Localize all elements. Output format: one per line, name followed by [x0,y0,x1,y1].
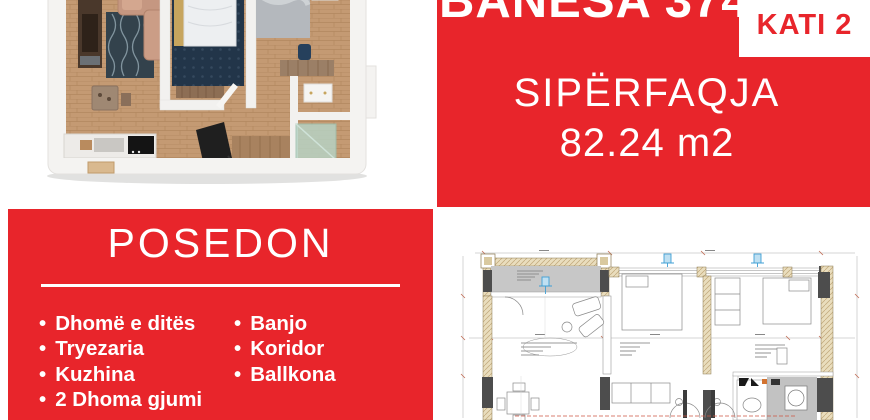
bedroom-wall-bottom [160,100,224,110]
divider-line [41,284,400,287]
column [818,272,830,298]
door-leaf [711,390,715,418]
toilet [298,44,311,60]
feature-list-column2: •Banjo •Koridor •Ballkona [234,311,336,387]
living-furniture [497,296,605,420]
feature-label: Tryezaria [55,337,144,360]
tv-cabinet-inner [82,14,98,52]
tv-cabinet-shelf [80,56,100,65]
feature-item: •Koridor [234,336,336,361]
bullet-icon: • [234,337,241,360]
kitchen-counter [64,134,156,158]
feature-label: Banjo [250,312,307,335]
bedroom1-furniture [612,274,682,403]
floor-badge: KATI 2 [739,0,870,57]
bed-bench [176,86,224,98]
bedroom2-furniture [715,278,811,364]
bullet-icon: • [39,388,46,411]
floorplan-3d-render [0,0,435,196]
features-title: POSEDON [8,220,433,267]
feature-item: •2 Dhoma gjumi [39,387,202,412]
room-label-text [521,343,577,355]
hall-bench [232,136,290,158]
entry-door [88,162,114,173]
bathroom [737,377,817,420]
feature-item: •Tryezaria [39,336,202,361]
feature-label: Koridor [250,337,324,360]
interior-wall [603,296,611,374]
bed [174,0,236,46]
features-panel: POSEDON •Dhomë e ditës •Tryezaria •Kuzhi… [8,209,433,420]
feature-label: 2 Dhoma gjumi [55,388,202,411]
area-label: SIPËRFAQJA [437,71,857,116]
feature-item: •Banjo [234,311,336,336]
floorplan-2d-image [455,250,870,420]
room-label-text [620,343,650,355]
door-leaf [683,390,687,418]
floorplan-3d-image [0,0,435,196]
stool [121,93,131,106]
feature-item: •Dhomë e ditës [39,311,202,336]
feature-label: Dhomë e ditës [55,312,195,335]
bullet-icon: • [234,312,241,335]
bullet-icon: • [39,363,46,386]
bathroom-floor [256,0,310,38]
bedroom-wall-left [160,0,170,108]
unit-banner: BANESA 374 KATI 2 SIPËRFAQJA 82.24 m2 [437,0,870,207]
feature-list-column1: •Dhomë e ditës •Tryezaria •Kuzhina •2 Dh… [39,311,202,413]
column [817,378,833,412]
bullet-icon: • [39,312,46,335]
column [703,390,711,420]
bath-wall-top [733,372,833,376]
coffee-table [92,86,118,110]
feature-item: •Ballkona [234,362,336,387]
feature-label: Kuzhina [55,363,135,386]
column [482,377,493,408]
interior-wall [703,276,711,374]
hall-wall-2 [290,112,350,120]
feature-label: Ballkona [250,363,335,386]
feature-item: •Kuzhina [39,362,202,387]
bedroom-wall-right [246,0,256,108]
bullet-icon: • [39,337,46,360]
area-value: 82.24 m2 [437,121,857,166]
hall-cabinet [304,84,332,102]
column [600,377,610,410]
floorplan-2d-drawing [455,250,870,420]
bullet-icon: • [234,363,241,386]
unit-title: BANESA 374 [439,0,741,29]
balcony [481,254,611,297]
